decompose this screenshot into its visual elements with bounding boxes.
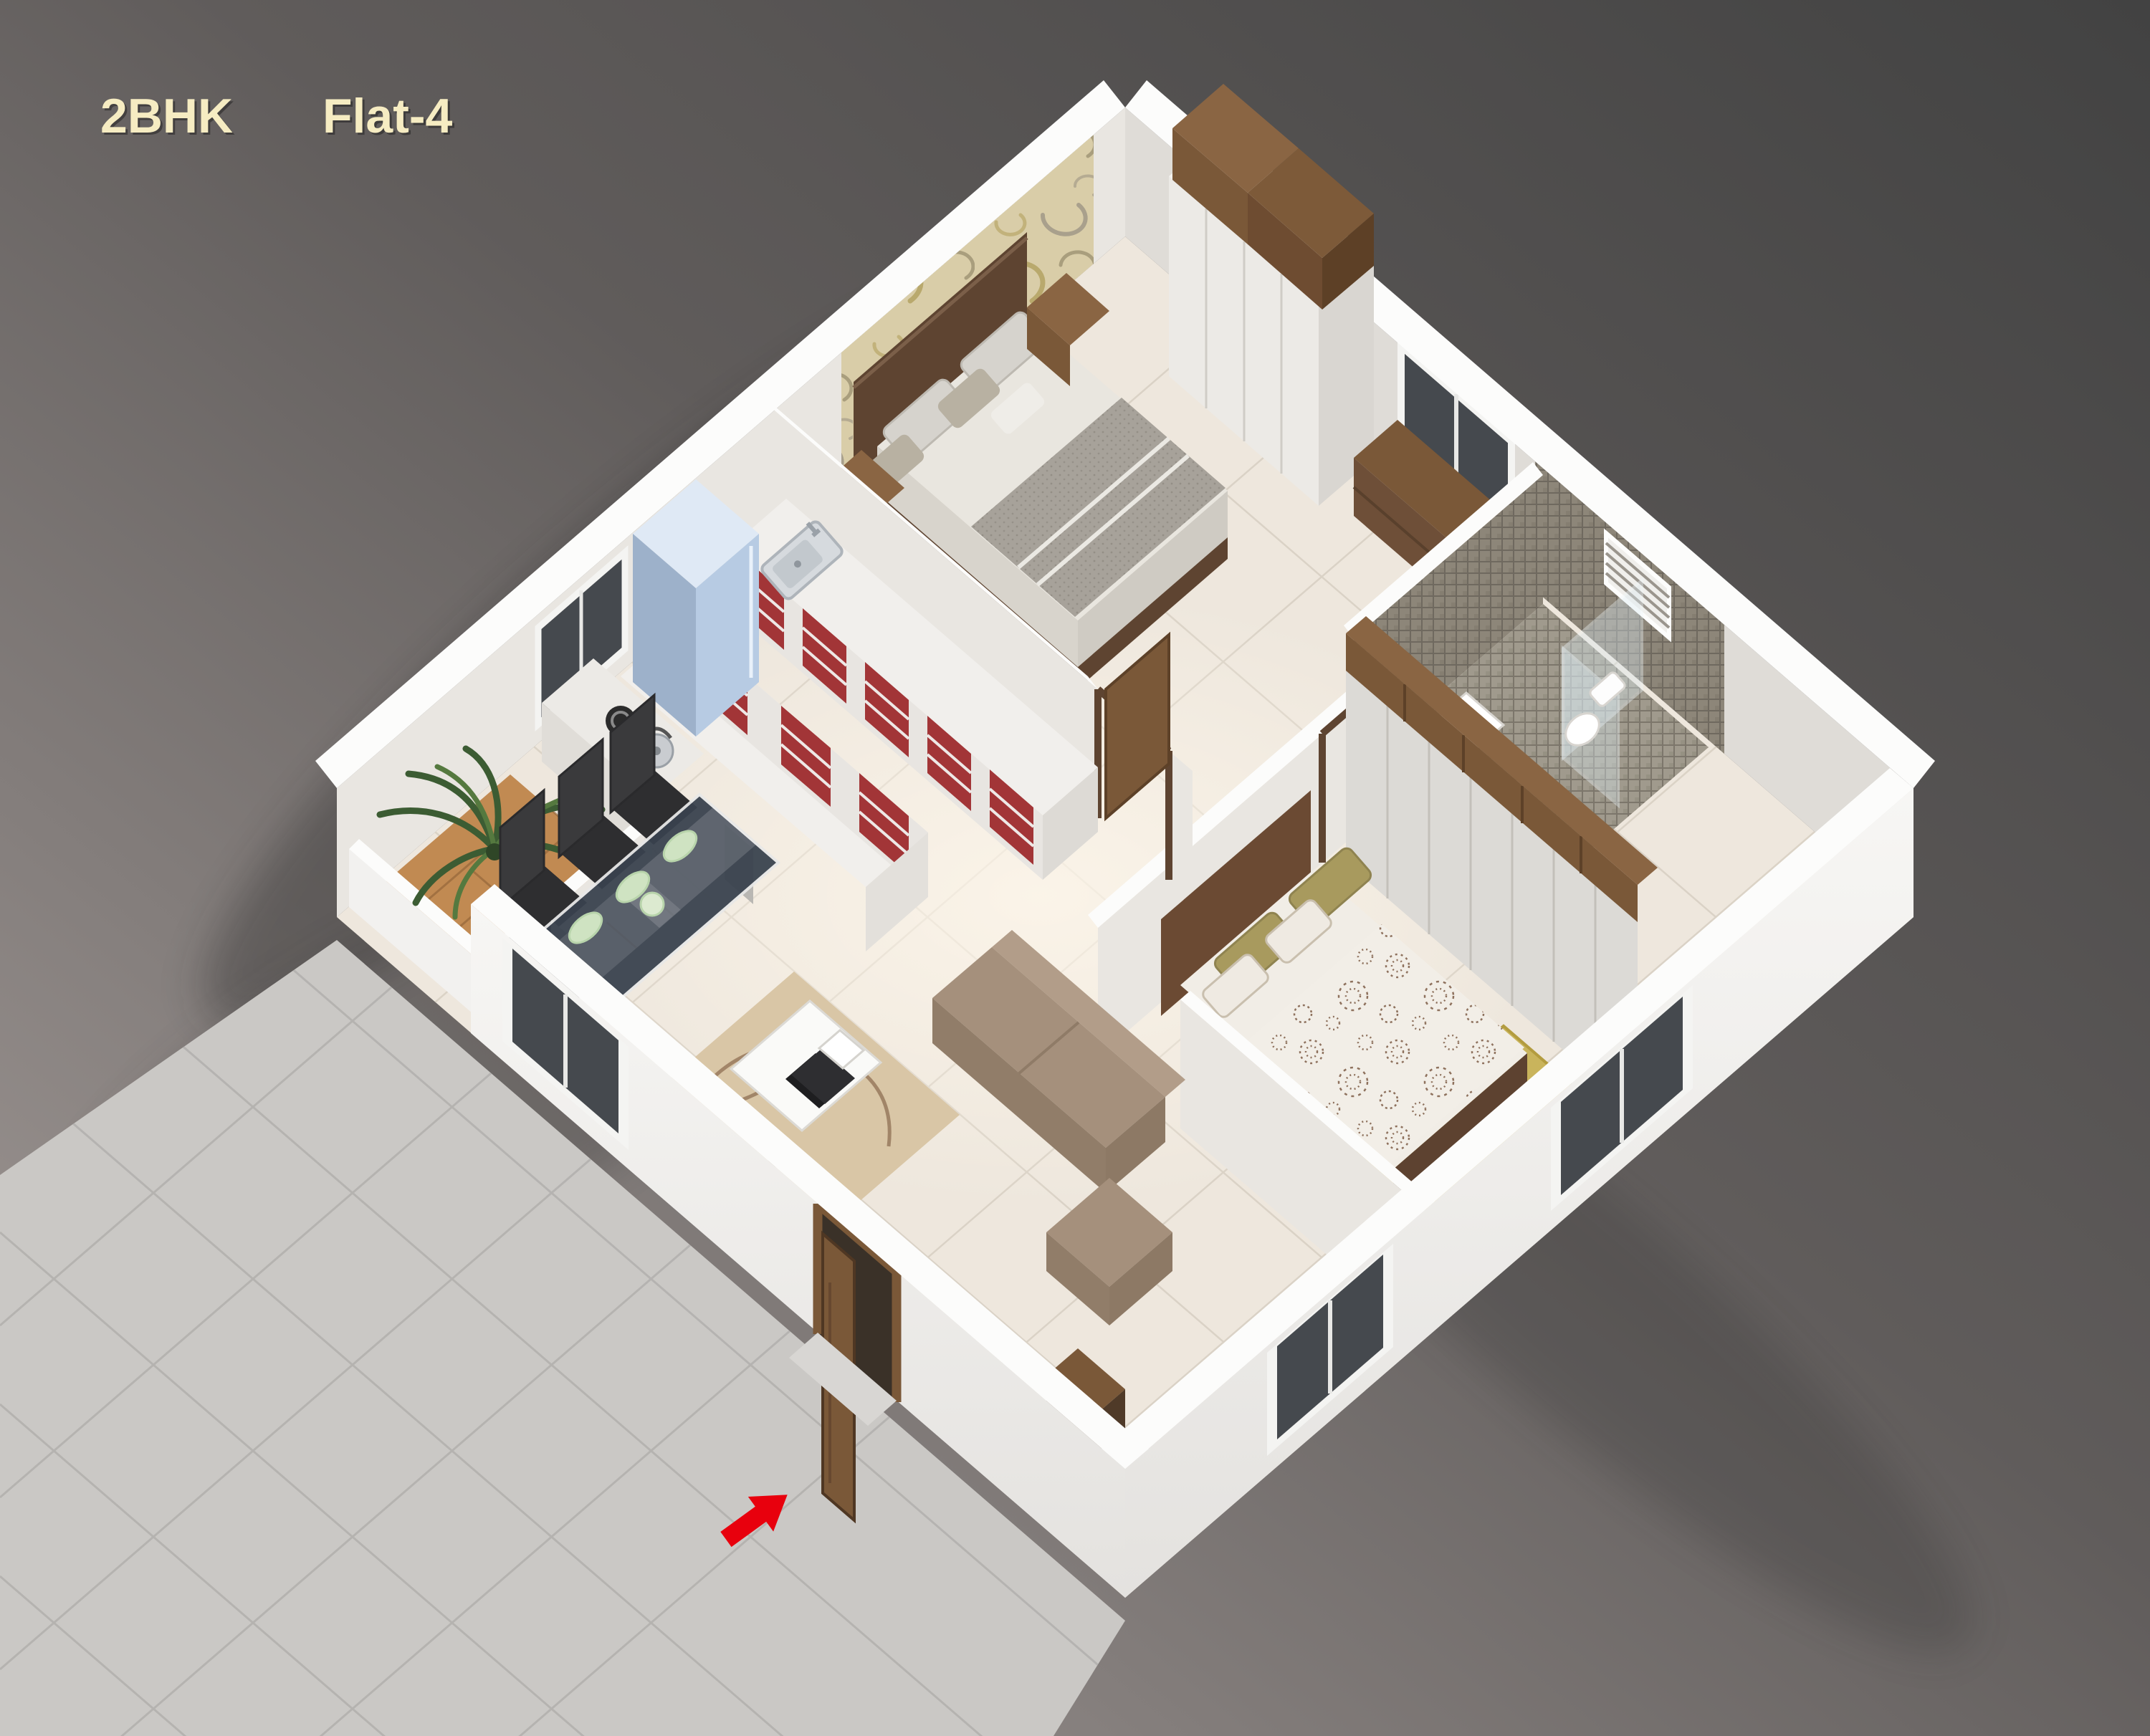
floorplan-stage: 2BHK Flat-4 2BHK Flat-4 (0, 0, 2150, 1736)
title-bhk: 2BHK (100, 89, 233, 143)
floorplan-render: 2BHK Flat-4 2BHK Flat-4 (0, 0, 2150, 1736)
title-flat: Flat-4 (322, 89, 453, 143)
